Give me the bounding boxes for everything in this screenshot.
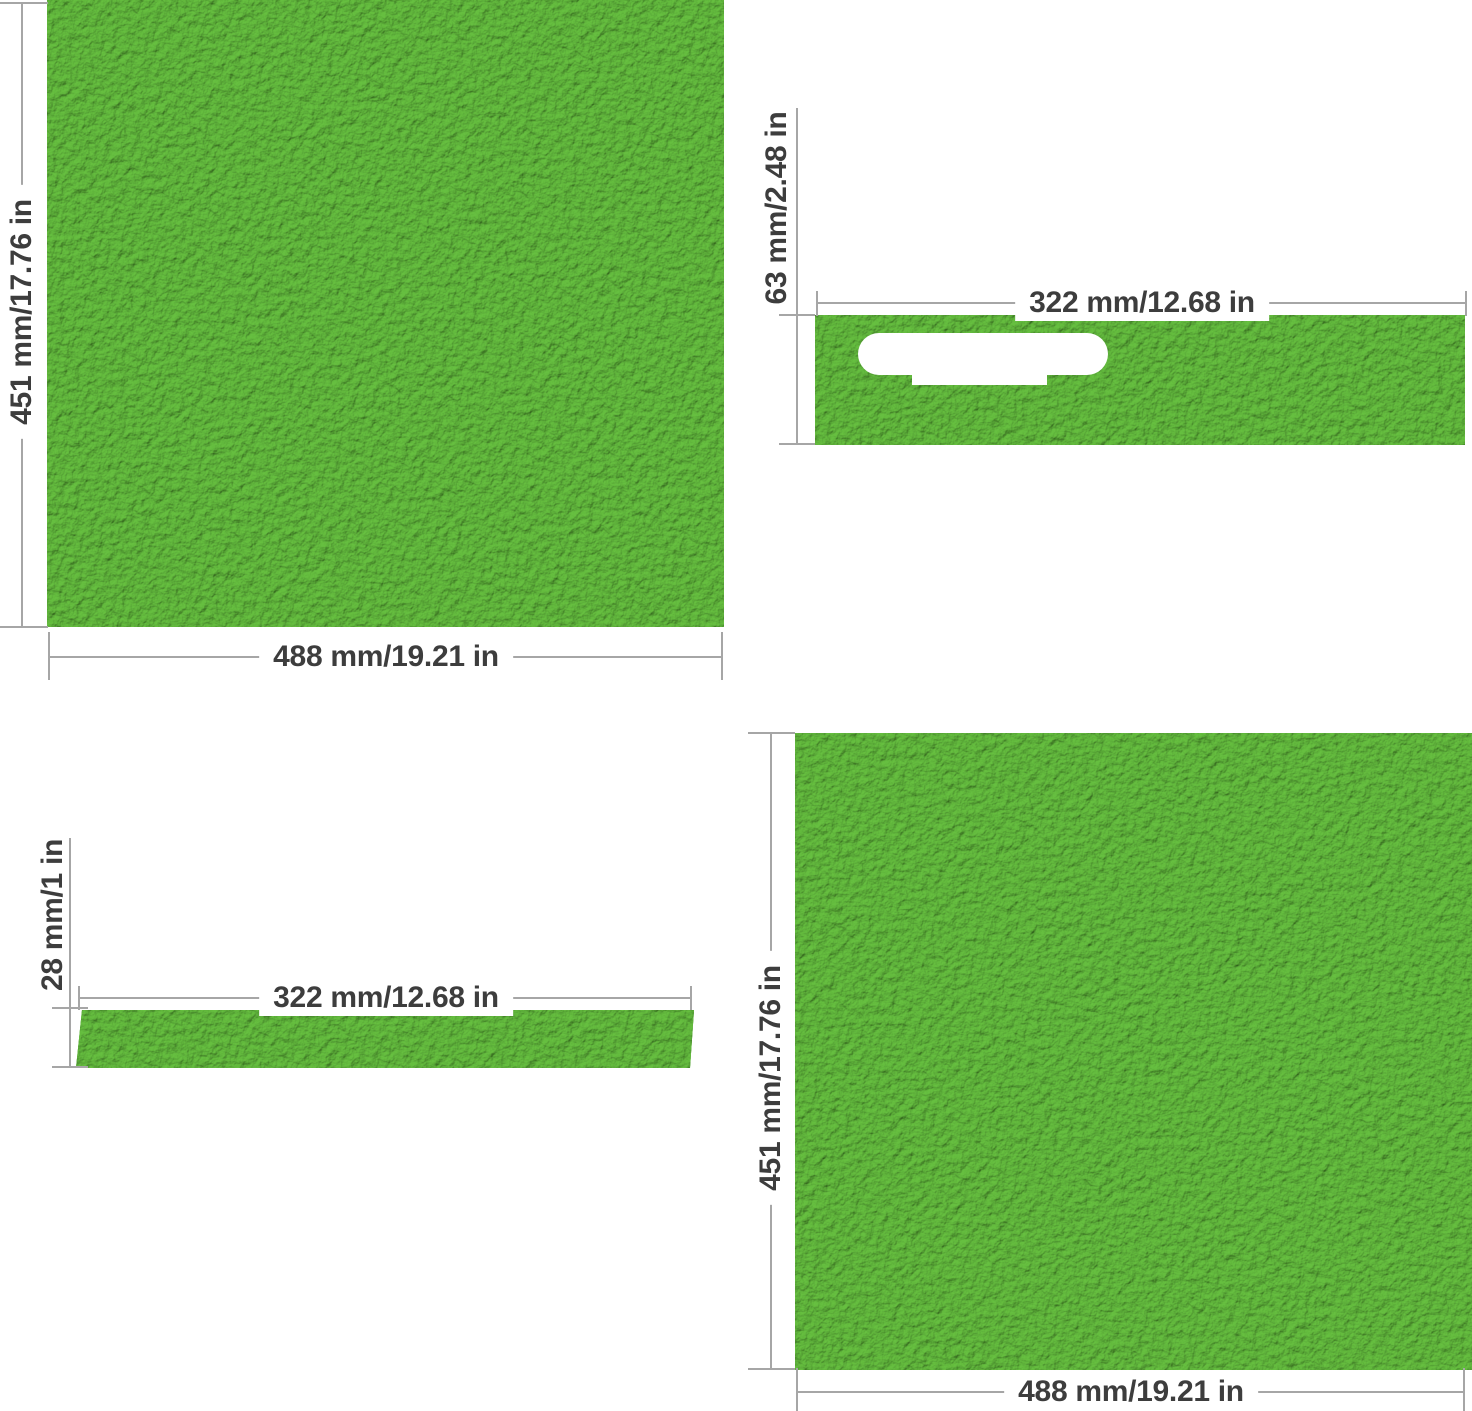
dim-line-vertical-p2 [796,108,798,445]
dim-tick-left-p4 [796,1368,798,1411]
dim-tick-top-p2 [779,314,815,316]
leather-texture [795,733,1472,1370]
panel-bottom-left-thin-strip [76,1010,694,1068]
height-dimension-label: 451 mm/17.76 in [4,185,40,439]
height-dimension-label: 28 mm/1 in [35,831,71,999]
dim-tick-top-p3 [52,1007,88,1009]
width-dimension-label: 488 mm/19.21 in [259,639,513,675]
width-dimension-label: 322 mm/12.68 in [1015,285,1269,321]
dim-tick-right-p4 [1463,1368,1465,1411]
width-dimension-label: 488 mm/19.21 in [1004,1374,1258,1410]
leather-texture [47,0,724,627]
dim-tick-left-p1 [48,632,50,680]
panel-dimensions-diagram: 451 mm/17.76 in 488 mm/19.21 in 322 mm/1… [0,0,1472,1411]
dim-tick-bottom-p3 [52,1066,88,1068]
height-dimension-label: 63 mm/2.48 in [759,104,795,313]
width-dimension-label: 322 mm/12.68 in [259,980,513,1016]
dim-tick-top-p1 [0,2,48,4]
panel-bottom-right [795,733,1472,1370]
dim-tick-left-p2 [816,291,818,316]
dim-tick-bottom-p4 [748,1368,795,1370]
handle-slot-notch [912,365,1047,385]
dim-tick-bottom-p2 [779,443,815,445]
dim-tick-right-p1 [721,632,723,680]
dim-tick-right-p3 [690,986,692,1010]
dim-tick-top-p4 [748,732,795,734]
height-dimension-label: 451 mm/17.76 in [753,951,789,1205]
panel-top-left [47,0,724,627]
dim-tick-right-p2 [1465,291,1467,316]
leather-texture [76,1010,694,1068]
dim-tick-bottom-p1 [0,626,48,628]
panel-top-right-handle-strip [815,315,1465,445]
